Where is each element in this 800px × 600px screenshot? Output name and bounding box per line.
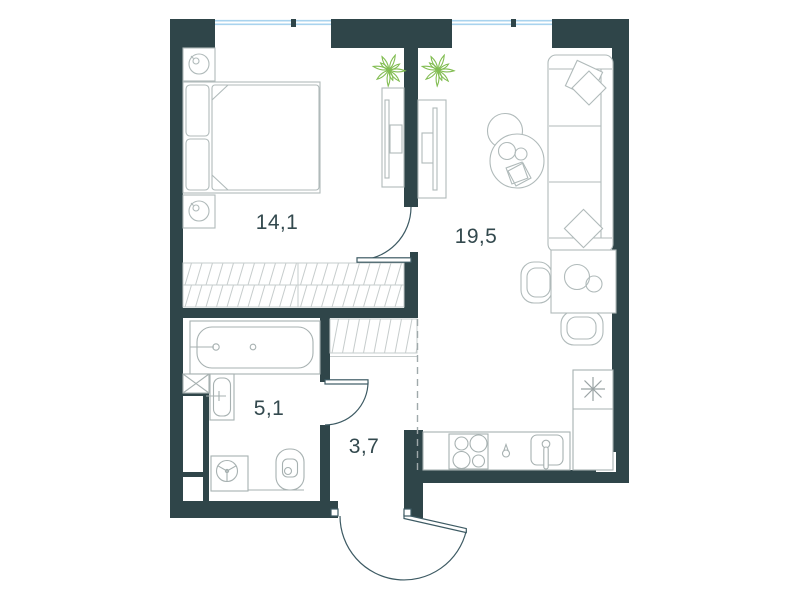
washing-machine bbox=[211, 456, 248, 491]
bedroom-furniture bbox=[183, 48, 404, 228]
room-label-hallway: 3,7 bbox=[349, 435, 379, 459]
nightstand-bottom bbox=[183, 195, 215, 228]
vent-shaft-box bbox=[183, 374, 209, 393]
bedroom-door bbox=[357, 207, 411, 262]
wall-bathroom-right-upper bbox=[320, 318, 330, 382]
bathroom-door bbox=[325, 380, 368, 425]
room-label-bedroom: 14,1 bbox=[256, 211, 298, 235]
plant-icon bbox=[373, 55, 405, 86]
floor-plan-drawing bbox=[0, 0, 800, 600]
wall-partition-upper bbox=[404, 48, 418, 207]
toilet bbox=[276, 449, 304, 490]
wall-bathroom-right-lower bbox=[320, 425, 330, 501]
door-jamb-cap bbox=[331, 509, 338, 516]
sofa bbox=[548, 55, 613, 252]
plant-icon bbox=[422, 55, 454, 86]
coffee-tables bbox=[488, 114, 545, 189]
shaft-niche-1 bbox=[183, 396, 203, 472]
nightstand-top bbox=[183, 48, 215, 81]
bedroom-window bbox=[215, 21, 331, 25]
entrance-door bbox=[331, 509, 466, 580]
window-mullion bbox=[291, 19, 296, 27]
bed bbox=[183, 82, 320, 193]
fridge bbox=[573, 370, 613, 470]
tv-unit-living bbox=[418, 100, 446, 198]
bedroom-wardrobe bbox=[183, 263, 404, 307]
washbasin bbox=[206, 374, 234, 420]
snowflake-icon bbox=[581, 377, 605, 401]
shaft-niche-2 bbox=[183, 477, 203, 501]
window-mullion bbox=[511, 19, 516, 27]
bathtub bbox=[190, 321, 320, 374]
floor-plan-canvas: 14,1 19,5 5,1 3,7 bbox=[0, 0, 800, 600]
hallway-closet bbox=[330, 319, 417, 357]
tv-unit-bedroom bbox=[382, 88, 404, 187]
living-window bbox=[452, 21, 552, 25]
room-label-bathroom: 5,1 bbox=[254, 397, 284, 421]
living-furniture bbox=[418, 55, 616, 345]
door-jamb-cap bbox=[404, 509, 411, 516]
stove bbox=[449, 434, 488, 469]
room-label-living-kitchen: 19,5 bbox=[455, 225, 497, 249]
wall-left bbox=[170, 19, 183, 518]
kitchen bbox=[423, 370, 613, 470]
dining-table bbox=[551, 250, 616, 313]
wall-bedroom-bottom bbox=[170, 308, 418, 318]
dining-set bbox=[521, 250, 616, 345]
wall-facade-pier bbox=[331, 19, 452, 48]
